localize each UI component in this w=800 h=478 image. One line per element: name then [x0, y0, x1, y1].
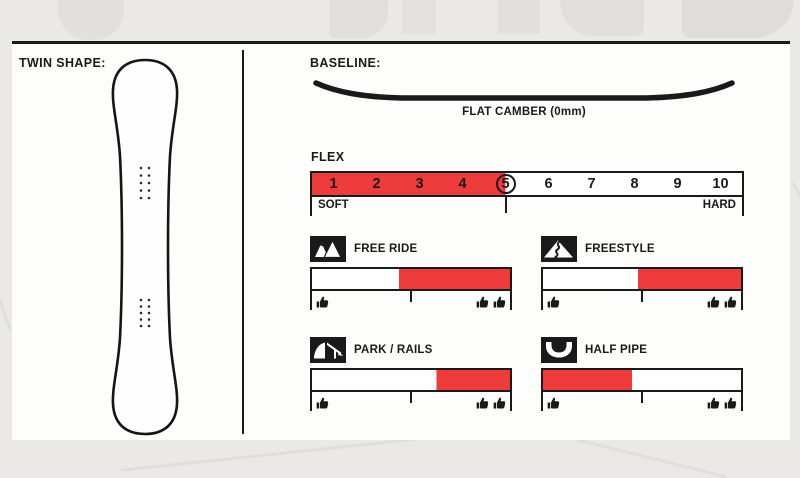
rating-label: FREE RIDE: [354, 243, 417, 255]
spec-sheet-panel: TWIN SHAPE: BASELINE: FLAT CAMBER (0mm): [12, 41, 790, 440]
flex-scale-labels: SOFT HARD: [310, 197, 744, 216]
double-thumb-up-icon: [476, 397, 506, 410]
flex-value-1: 1: [329, 176, 337, 192]
flex-soft-label: SOFT: [318, 199, 349, 211]
watermark-shape: [402, 0, 436, 34]
double-thumb-up-icon: [707, 397, 737, 410]
freeride-mountains-icon: [310, 236, 346, 262]
flex-value-9: 9: [673, 176, 681, 192]
flex-value-4: 4: [458, 176, 466, 192]
watermark-shape: [560, 0, 644, 36]
freestyle-slope-icon: [541, 236, 577, 262]
flex-hard-label: HARD: [703, 199, 736, 211]
double-thumb-up-icon: [707, 296, 737, 309]
halfpipe-icon: [541, 337, 577, 363]
paper-crease: [0, 273, 12, 330]
paper-crease: [791, 182, 800, 261]
rating-half-pipe: HALF PIPE: [541, 337, 743, 411]
scale-mid-tick: [641, 291, 643, 302]
rating-free-ride: FREE RIDE: [310, 236, 512, 310]
rating-label: PARK / RAILS: [354, 344, 433, 356]
thumb-up-icon: [547, 397, 560, 410]
rating-label: HALF PIPE: [585, 344, 647, 356]
watermark-shape: [58, 0, 124, 40]
flex-value-10: 10: [712, 176, 728, 192]
thumb-up-icon: [316, 397, 329, 410]
rating-park-rails: PARK / RAILS: [310, 337, 512, 411]
flex-scale-bar: 1 2 3 4 5 6 7 8 9 10: [310, 171, 744, 197]
twin-snowboard-outline: [101, 58, 189, 436]
flex-selected-tick: [505, 197, 507, 213]
thumb-up-icon: [547, 296, 560, 309]
paper-crease: [121, 435, 440, 471]
watermark-shape: [330, 0, 388, 38]
rating-scale: [310, 392, 512, 411]
terrain-ratings: FREE RIDE: [310, 236, 743, 411]
flex-value-8: 8: [630, 176, 638, 192]
flex-value-5-selected: 5: [496, 174, 516, 194]
rating-bar: [541, 267, 743, 291]
flex-value-2: 2: [372, 176, 380, 192]
rating-bar: [310, 267, 512, 291]
flex-title: FLEX: [311, 150, 344, 164]
scale-mid-tick: [410, 291, 412, 302]
flex-value-7: 7: [587, 176, 595, 192]
rating-freestyle: FREESTYLE: [541, 236, 743, 310]
scale-mid-tick: [410, 392, 412, 403]
rating-bar: [541, 368, 743, 392]
park-rails-icon: [310, 337, 346, 363]
rating-scale: [310, 291, 512, 310]
rating-bar: [310, 368, 512, 392]
flat-camber-profile-icon: [310, 77, 738, 107]
snowboard-icon: [101, 58, 189, 436]
watermark-shape: [682, 0, 794, 38]
flex-value-6: 6: [544, 176, 552, 192]
watermark-shape: [498, 0, 540, 34]
rating-scale: [541, 291, 743, 310]
rating-label: FREESTYLE: [585, 243, 655, 255]
camber-caption: FLAT CAMBER (0mm): [310, 106, 738, 118]
flex-value-3: 3: [415, 176, 423, 192]
double-thumb-up-icon: [476, 296, 506, 309]
twin-shape-title: TWIN SHAPE:: [19, 56, 106, 70]
thumb-up-icon: [316, 296, 329, 309]
baseline-title: BASELINE:: [310, 56, 381, 70]
panel-divider: [242, 50, 244, 434]
scale-mid-tick: [641, 392, 643, 403]
rating-scale: [541, 392, 743, 411]
